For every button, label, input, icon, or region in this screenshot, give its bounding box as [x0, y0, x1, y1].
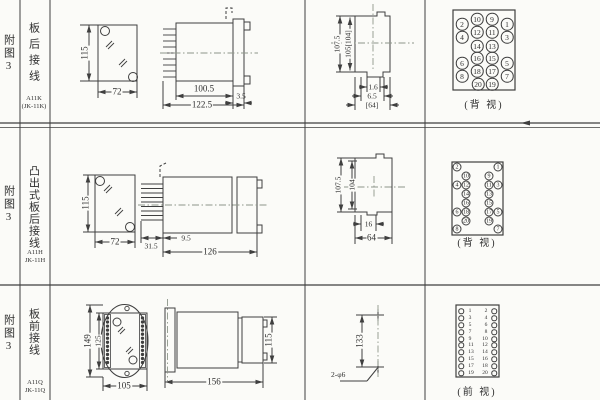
terminal-pin: 2 — [456, 18, 469, 31]
terminal-pin: 16 — [471, 52, 484, 65]
terminal-pin: 3 — [494, 181, 503, 190]
terminal-pin: 20 — [482, 370, 488, 376]
terminal-pin: 6 — [453, 208, 462, 217]
terminal-pin-circle — [458, 329, 464, 335]
terminal-pin: 5 — [501, 57, 514, 70]
terminal-pin: 14 — [482, 349, 488, 355]
terminal-pins-overlay: 1092112114314131615651817872019211094121… — [0, 0, 600, 400]
terminal-pin: 11 — [485, 181, 494, 190]
terminal-pin: 15 — [485, 199, 494, 208]
terminal-pin-circle — [458, 308, 464, 314]
terminal-pin: 8 — [453, 225, 462, 234]
terminal-pin-circle — [491, 342, 497, 348]
terminal-pin-circle — [491, 349, 497, 355]
terminal-pin: 4 — [456, 31, 469, 44]
terminal-pin: 19 — [486, 78, 499, 91]
terminal-pin: 13 — [486, 40, 499, 53]
terminal-pin: 17 — [485, 208, 494, 217]
terminal-pin-circle — [491, 370, 497, 376]
terminal-pin: 6 — [485, 322, 488, 328]
terminal-pin: 1 — [494, 163, 503, 172]
terminal-pin: 18 — [482, 363, 488, 369]
terminal-pin: 4 — [485, 315, 488, 321]
terminal-pin: 11 — [486, 26, 499, 39]
terminal-pin: 13 — [485, 190, 494, 199]
terminal-pin-circle — [491, 356, 497, 362]
terminal-pin: 7 — [501, 70, 514, 83]
terminal-pin: 14 — [471, 40, 484, 53]
terminal-pin: 10 — [462, 172, 471, 181]
terminal-pin: 19 — [485, 217, 494, 226]
terminal-pin: 4 — [453, 181, 462, 190]
terminal-pin: 9 — [486, 13, 499, 26]
terminal-pin: 20 — [472, 78, 485, 91]
terminal-pin: 12 — [482, 342, 488, 348]
terminal-pin: 1 — [469, 308, 472, 314]
terminal-pin: 18 — [462, 208, 471, 217]
terminal-pin: 12 — [462, 181, 471, 190]
terminal-pin: 5 — [469, 322, 472, 328]
terminal-pin-circle — [458, 349, 464, 355]
terminal-pin-circle — [458, 322, 464, 328]
terminal-pin-circle — [458, 363, 464, 369]
terminal-pin: 17 — [486, 65, 499, 78]
terminal-pin: 1 — [501, 18, 514, 31]
terminal-pin: 9 — [485, 172, 494, 181]
terminal-pin-circle — [491, 336, 497, 342]
terminal-pin: 20 — [462, 217, 471, 226]
terminal-pin: 7 — [494, 225, 503, 234]
terminal-pin: 2 — [485, 308, 488, 314]
terminal-pin: 3 — [469, 315, 472, 321]
terminal-pin: 10 — [471, 13, 484, 26]
terminal-pin-circle — [491, 308, 497, 314]
terminal-pin-circle — [458, 370, 464, 376]
terminal-pin: 16 — [462, 199, 471, 208]
terminal-pin: 8 — [456, 70, 469, 83]
terminal-pin-circle — [458, 336, 464, 342]
terminal-pin-circle — [491, 322, 497, 328]
terminal-pin: 5 — [494, 208, 503, 217]
terminal-pin: 15 — [468, 356, 474, 362]
terminal-pin-circle — [491, 329, 497, 335]
terminal-pin-circle — [491, 363, 497, 369]
terminal-pin-circle — [458, 342, 464, 348]
terminal-pin-circle — [491, 315, 497, 321]
terminal-pin: 15 — [486, 52, 499, 65]
terminal-pin: 19 — [468, 370, 474, 376]
terminal-pin-circle — [458, 356, 464, 362]
terminal-pin: 17 — [468, 363, 474, 369]
terminal-pin: 6 — [456, 57, 469, 70]
terminal-pin: 18 — [471, 65, 484, 78]
terminal-pin: 7 — [469, 329, 472, 335]
terminal-pin: 2 — [453, 163, 462, 172]
terminal-pin: 13 — [468, 349, 474, 355]
terminal-pin: 14 — [462, 190, 471, 199]
terminal-pin: 3 — [501, 31, 514, 44]
terminal-pin: 11 — [468, 342, 473, 348]
terminal-pin: 8 — [485, 329, 488, 335]
terminal-pin-circle — [458, 315, 464, 321]
terminal-pin: 16 — [482, 356, 488, 362]
terminal-pin: 12 — [471, 26, 484, 39]
